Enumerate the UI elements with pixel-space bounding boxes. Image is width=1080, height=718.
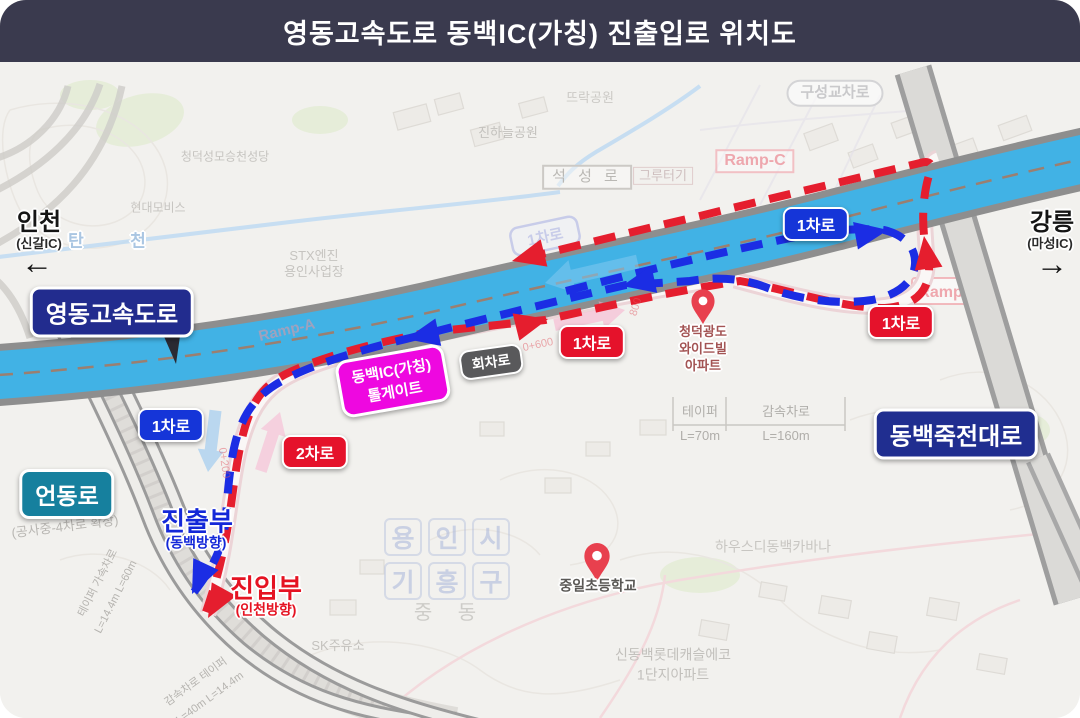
label-church: 청덕성모승천성당 bbox=[181, 150, 269, 163]
label-incheon: 인천 bbox=[17, 210, 61, 236]
badge-lane2-red: 2차로 bbox=[282, 435, 348, 469]
label-jinhaneul-park: 진하늘공원 bbox=[478, 126, 538, 140]
label-lotte-2: 1단지아파트 bbox=[637, 667, 709, 682]
label-district-si: 시 bbox=[472, 518, 510, 556]
page-title: 영동고속도로 동백IC(가칭) 진출입로 위치도 bbox=[283, 12, 797, 51]
label-taper-length: L=70m bbox=[680, 429, 720, 443]
label-lotte-1: 신동백롯데캐슬에코 bbox=[615, 647, 731, 662]
label-exit-direction: (동백방향) bbox=[166, 535, 227, 550]
badge-dongbaek-jukjeon-daero: 동백죽전대로 bbox=[874, 409, 1038, 460]
label-district-heung: 흥 bbox=[428, 562, 466, 600]
label-apartment-3: 아파트 bbox=[685, 359, 721, 373]
location-map-infographic: Ramp-B 1차로 bbox=[0, 0, 1080, 718]
label-jungdong: 중 동 bbox=[414, 602, 486, 624]
label-exit-section: 진출부 bbox=[161, 508, 233, 537]
label-district-yong: 용 bbox=[384, 518, 422, 556]
label-housd: 하우스디동백카바나 bbox=[715, 539, 831, 554]
label-seokseong-ro: 석 성 로 bbox=[542, 165, 632, 190]
badge-lane1-blue-ramp: 1차로 bbox=[138, 408, 204, 442]
label-district-gu: 구 bbox=[472, 562, 510, 600]
label-decel-lane: 감속차로 bbox=[762, 405, 810, 419]
label-gangneung: 강릉 bbox=[1030, 210, 1074, 236]
label-decel-length: L=160m bbox=[762, 429, 809, 443]
arrow-west-icon: ← bbox=[21, 245, 53, 280]
label-entry-section: 진입부 bbox=[230, 575, 302, 604]
label-hyundai-mobis: 현대모비스 bbox=[130, 201, 185, 214]
label-stx-1: STX엔진 bbox=[289, 249, 338, 263]
label-sk-station: SK주유소 bbox=[311, 639, 364, 653]
badge-eondongro: 언동로 bbox=[19, 469, 114, 519]
label-tancheon-1: 탄 bbox=[68, 233, 84, 252]
label-guseong-junction: 구성교차로 bbox=[786, 80, 883, 107]
arrow-east-icon: → bbox=[1036, 246, 1068, 281]
label-taper: 테이퍼 bbox=[682, 405, 718, 419]
title-bar: 영동고속도로 동백IC(가칭) 진출입로 위치도 bbox=[0, 0, 1080, 62]
badge-yeongdong-expressway: 영동고속도로 bbox=[30, 287, 194, 338]
label-school: 중일초등학교 bbox=[559, 578, 636, 593]
map-canvas: Ramp-B 1차로 bbox=[0, 0, 1080, 718]
label-district-gi: 기 bbox=[384, 562, 422, 600]
label-entry-direction: (인천방향) bbox=[236, 602, 297, 617]
label-apartment-2: 와이드빌 bbox=[679, 342, 727, 356]
label-gruteogi: 그루터기 bbox=[633, 167, 693, 185]
label-tancheon-2: 천 bbox=[130, 233, 146, 252]
label-ttarak-park: 뜨락공원 bbox=[566, 91, 614, 105]
badge-lane1-red-service: 1차로 bbox=[559, 325, 625, 359]
badge-lane1-blue-highway: 1차로 bbox=[783, 207, 849, 241]
label-apartment-1: 청덕광도 bbox=[679, 325, 727, 339]
badge-lane1-red-loop: 1차로 bbox=[868, 305, 934, 339]
label-district-in: 인 bbox=[428, 518, 466, 556]
label-ramp-c: Ramp-C bbox=[715, 149, 794, 173]
label-stx-2: 용인사업장 bbox=[284, 265, 344, 279]
